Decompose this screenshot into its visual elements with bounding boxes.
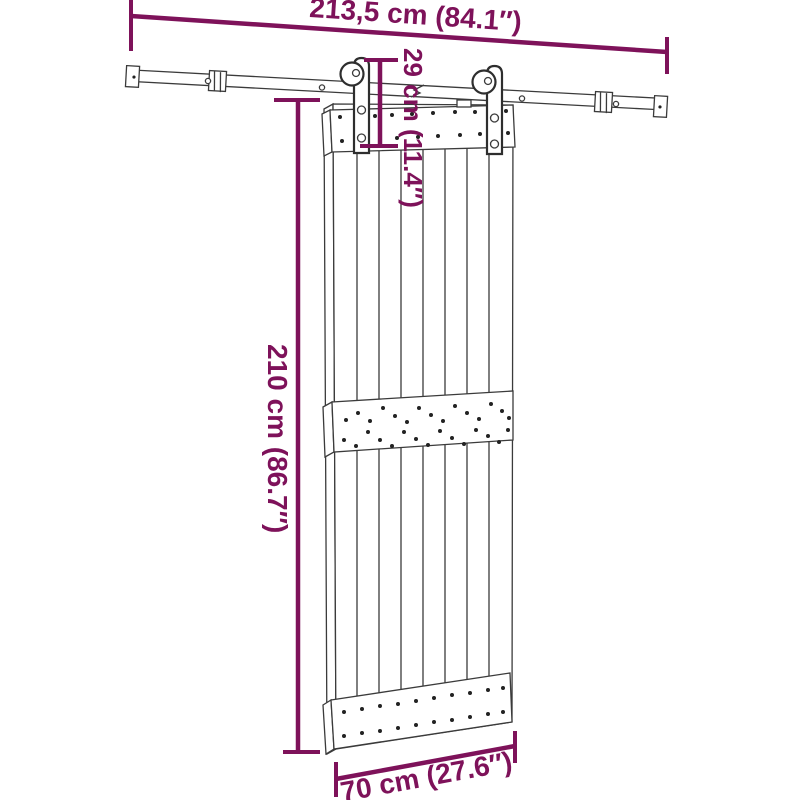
- dimension-label-door-height: 210 cm (86.7″): [262, 344, 293, 533]
- hanger-bolt: [358, 106, 366, 114]
- rail-connector-right: [594, 92, 612, 114]
- wheel-axle-right: [485, 78, 492, 85]
- rail-end-cap-right: [653, 96, 667, 118]
- product-diagram-canvas: 213,5 cm (84.1″) 29 cm (11.4″) 210 cm (8…: [0, 0, 800, 800]
- dimension-diagram-svg: 213,5 cm (84.1″) 29 cm (11.4″) 210 cm (8…: [0, 0, 800, 800]
- hanger-bolt: [358, 134, 366, 142]
- dimension-label-door-width: 70 cm (27.6″): [338, 746, 514, 800]
- hanger-bolt: [491, 114, 499, 122]
- rail-end-cap-left: [125, 66, 139, 88]
- wheel-axle-left: [353, 70, 360, 77]
- dimension-label-hanger-height: 29 cm (11.4″): [398, 48, 428, 208]
- hanger-bolt: [491, 140, 499, 148]
- door-top-bracket: [457, 100, 471, 107]
